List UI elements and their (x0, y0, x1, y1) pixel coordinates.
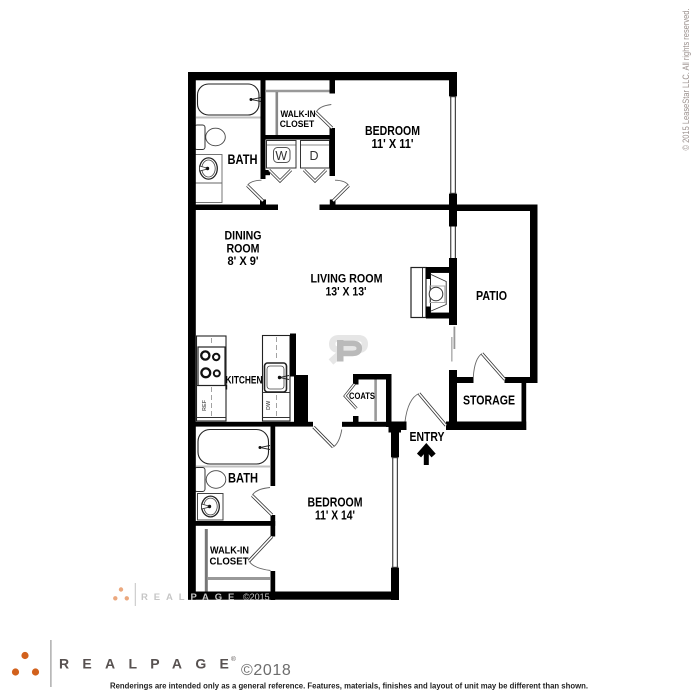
svg-text:11' X 11': 11' X 11' (372, 136, 414, 151)
svg-text:BATH: BATH (228, 471, 258, 486)
svg-text:COATS: COATS (349, 391, 375, 401)
svg-text:PATIO: PATIO (476, 289, 507, 303)
svg-text:8' X 9': 8' X 9' (228, 254, 259, 268)
svg-text:Renderings are intended only a: Renderings are intended only as a genera… (110, 682, 588, 691)
svg-text:CLOSET: CLOSET (210, 556, 250, 568)
svg-text:DINING: DINING (225, 229, 262, 243)
svg-text:©2018: ©2018 (241, 662, 291, 679)
svg-text:KITCHEN: KITCHEN (226, 375, 263, 387)
svg-text:LIVING ROOM: LIVING ROOM (311, 272, 383, 286)
svg-text:CLOSET: CLOSET (280, 119, 315, 130)
svg-text:REALPAGE: REALPAGE (141, 592, 240, 603)
svg-text:D: D (309, 149, 318, 163)
svg-text:13' X 13': 13' X 13' (326, 285, 367, 299)
svg-text:11' X 14': 11' X 14' (315, 508, 355, 523)
svg-text:REF: REF (202, 399, 208, 411)
svg-text:W: W (275, 149, 287, 163)
svg-text:ENTRY: ENTRY (410, 430, 446, 444)
svg-text:© 2015 LeaseStar LLC. All righ: © 2015 LeaseStar LLC. All rights reserve… (681, 9, 692, 151)
svg-text:STORAGE: STORAGE (463, 394, 515, 408)
svg-text:®: ® (231, 655, 236, 663)
svg-text:REALPAGE: REALPAGE (59, 656, 242, 672)
svg-text:©2015: ©2015 (243, 592, 270, 602)
svg-text:DW: DW (266, 400, 272, 410)
svg-text:BATH: BATH (228, 152, 258, 167)
